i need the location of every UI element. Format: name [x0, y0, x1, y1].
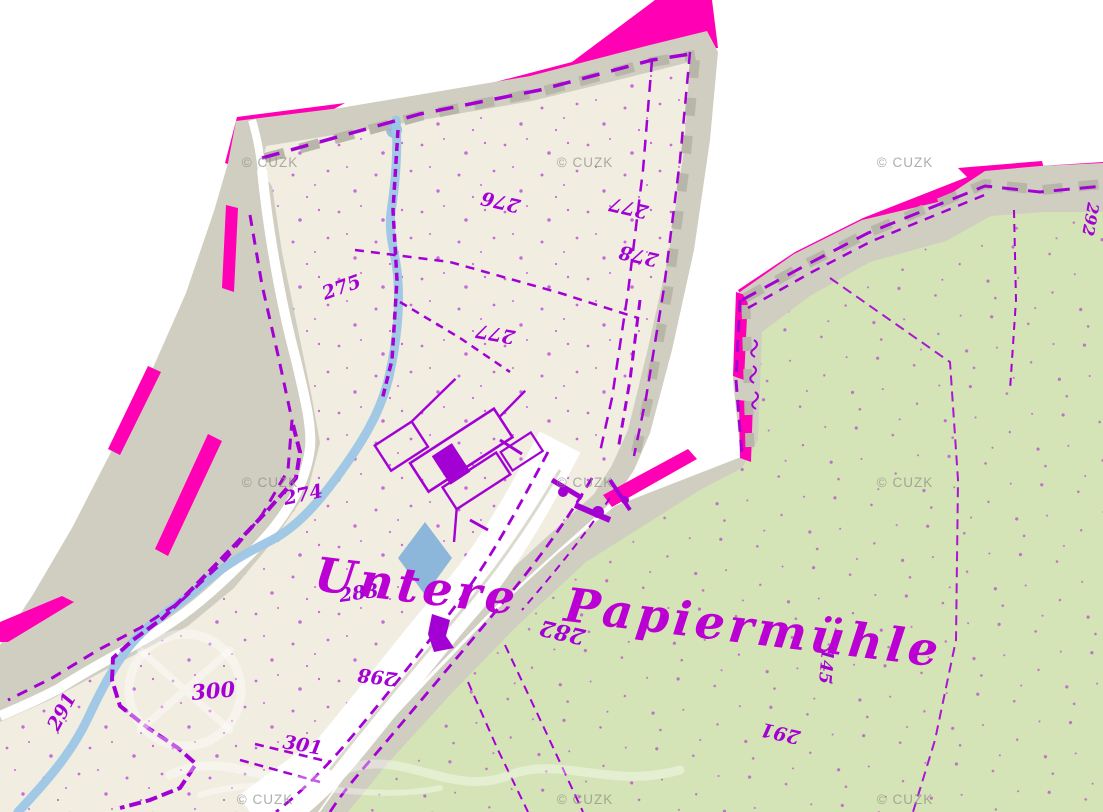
cuzk-watermark: © CUZK	[877, 475, 933, 490]
cuzk-watermark: © CUZK	[237, 792, 293, 807]
map-viewport[interactable]: Untere Papiermühle 275 276 277 278 277 2…	[0, 0, 1103, 812]
cuzk-watermark: © CUZK	[877, 155, 933, 170]
map-canvas[interactable]: Untere Papiermühle 275 276 277 278 277 2…	[0, 0, 1103, 812]
parcel-label: 145	[814, 648, 837, 685]
parcel-label: 300	[190, 676, 236, 705]
cuzk-watermark: © CUZK	[557, 155, 613, 170]
cuzk-watermark: © CUZK	[557, 475, 613, 490]
cuzk-watermark: © CUZK	[557, 792, 613, 807]
cuzk-watermark: © CUZK	[242, 475, 298, 490]
cuzk-watermark: © CUZK	[242, 155, 298, 170]
cuzk-watermark: © CUZK	[877, 792, 933, 807]
